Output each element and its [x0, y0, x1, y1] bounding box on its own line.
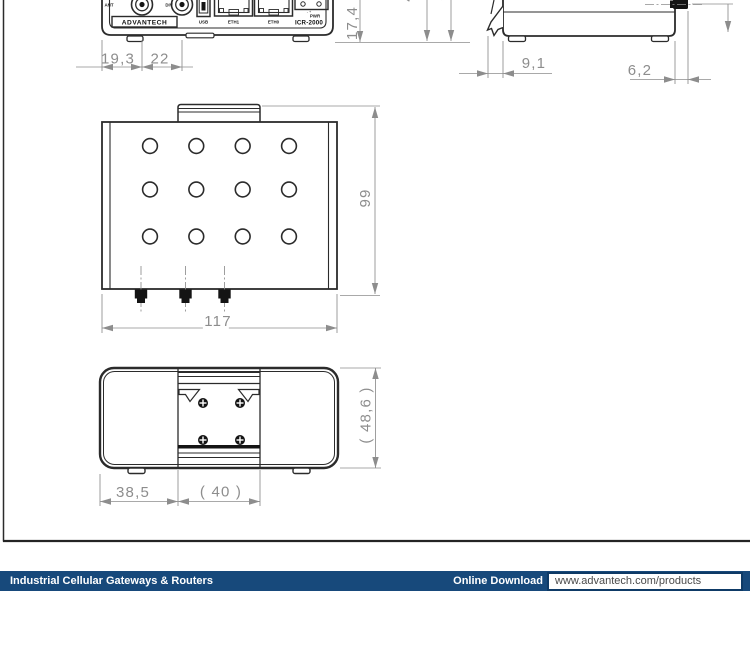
- eth0-port-icon: [255, 0, 293, 16]
- dim-6-2: 6,2: [628, 62, 652, 79]
- bottom-view-drawing: 38,5 ( 40 ) ( 48,6 ): [100, 368, 381, 506]
- ant-connector-icon: [132, 0, 153, 15]
- side-view-drawing: 9,1 6,2: [459, 0, 733, 84]
- dim-9-1: 9,1: [522, 55, 546, 72]
- footer-download-label: Online Download: [453, 571, 543, 591]
- side-foot-left: [509, 36, 526, 42]
- dim-17-4: 17,4: [344, 6, 361, 40]
- ant-label: ANT: [104, 3, 113, 8]
- dim-19-3: 19,3: [101, 51, 135, 68]
- front-center-tab: [186, 33, 214, 38]
- dim-40: ( 40 ): [200, 484, 242, 501]
- din-clip-hook: [488, 6, 504, 36]
- eth1-label: ETH1: [228, 20, 240, 25]
- front-foot-right: [293, 36, 309, 42]
- mounting-screws: [198, 398, 245, 445]
- bottom-foot-left: [128, 468, 145, 474]
- front-foot-left: [127, 36, 143, 42]
- power-terminal-icon: [295, 0, 328, 10]
- dim-48-6: ( 48,6 ): [358, 386, 375, 443]
- footer-url: www.advantech.com/products: [547, 572, 743, 591]
- eth1-port-icon: [215, 0, 253, 16]
- side-foot-right: [652, 36, 669, 42]
- usb-port-icon: [197, 0, 210, 17]
- advantech-logo: ADVANTECH: [122, 20, 167, 27]
- top-view-drawing: 117 99: [102, 105, 380, 334]
- front-view-drawing: ANT DIV ADVANTECH USB ETH1 ETH: [76, 0, 470, 71]
- dim-38-5: 38,5: [116, 484, 150, 501]
- vent-holes: [143, 139, 297, 244]
- bottom-foot-right: [293, 468, 310, 474]
- eth0-label: ETH0: [268, 20, 280, 25]
- din-hook-left: [179, 390, 200, 402]
- dim-117: 117: [204, 313, 232, 330]
- dimension-drawing: ANT DIV ADVANTECH USB ETH1 ETH: [0, 0, 750, 565]
- dim-99: 99: [357, 188, 374, 207]
- datasheet-page: ANT DIV ADVANTECH USB ETH1 ETH: [0, 0, 750, 650]
- usb-label: USB: [199, 20, 208, 25]
- model-label: ICR-2000: [295, 20, 323, 27]
- footer-category-title: Industrial Cellular Gateways & Routers: [10, 571, 213, 591]
- dim-partial-right: 5: [431, 0, 448, 1]
- div-label: DIV: [165, 3, 172, 8]
- pwr-label: PWR: [310, 14, 321, 19]
- dim-22: 22: [150, 51, 169, 68]
- dim-partial-left: 4: [399, 0, 416, 2]
- div-connector-icon: [172, 0, 193, 15]
